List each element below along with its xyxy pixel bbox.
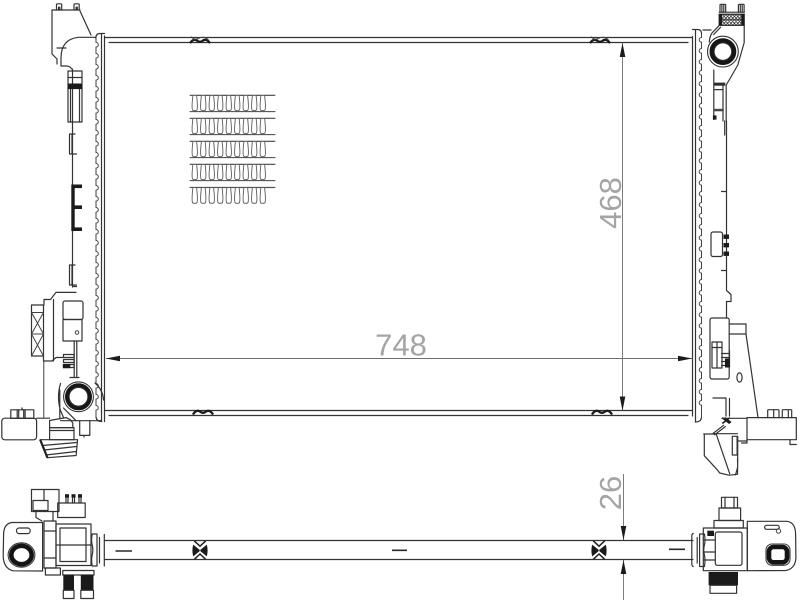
svg-text:26: 26 <box>593 476 628 510</box>
svg-text:468: 468 <box>593 177 628 229</box>
svg-text:748: 748 <box>375 328 427 363</box>
